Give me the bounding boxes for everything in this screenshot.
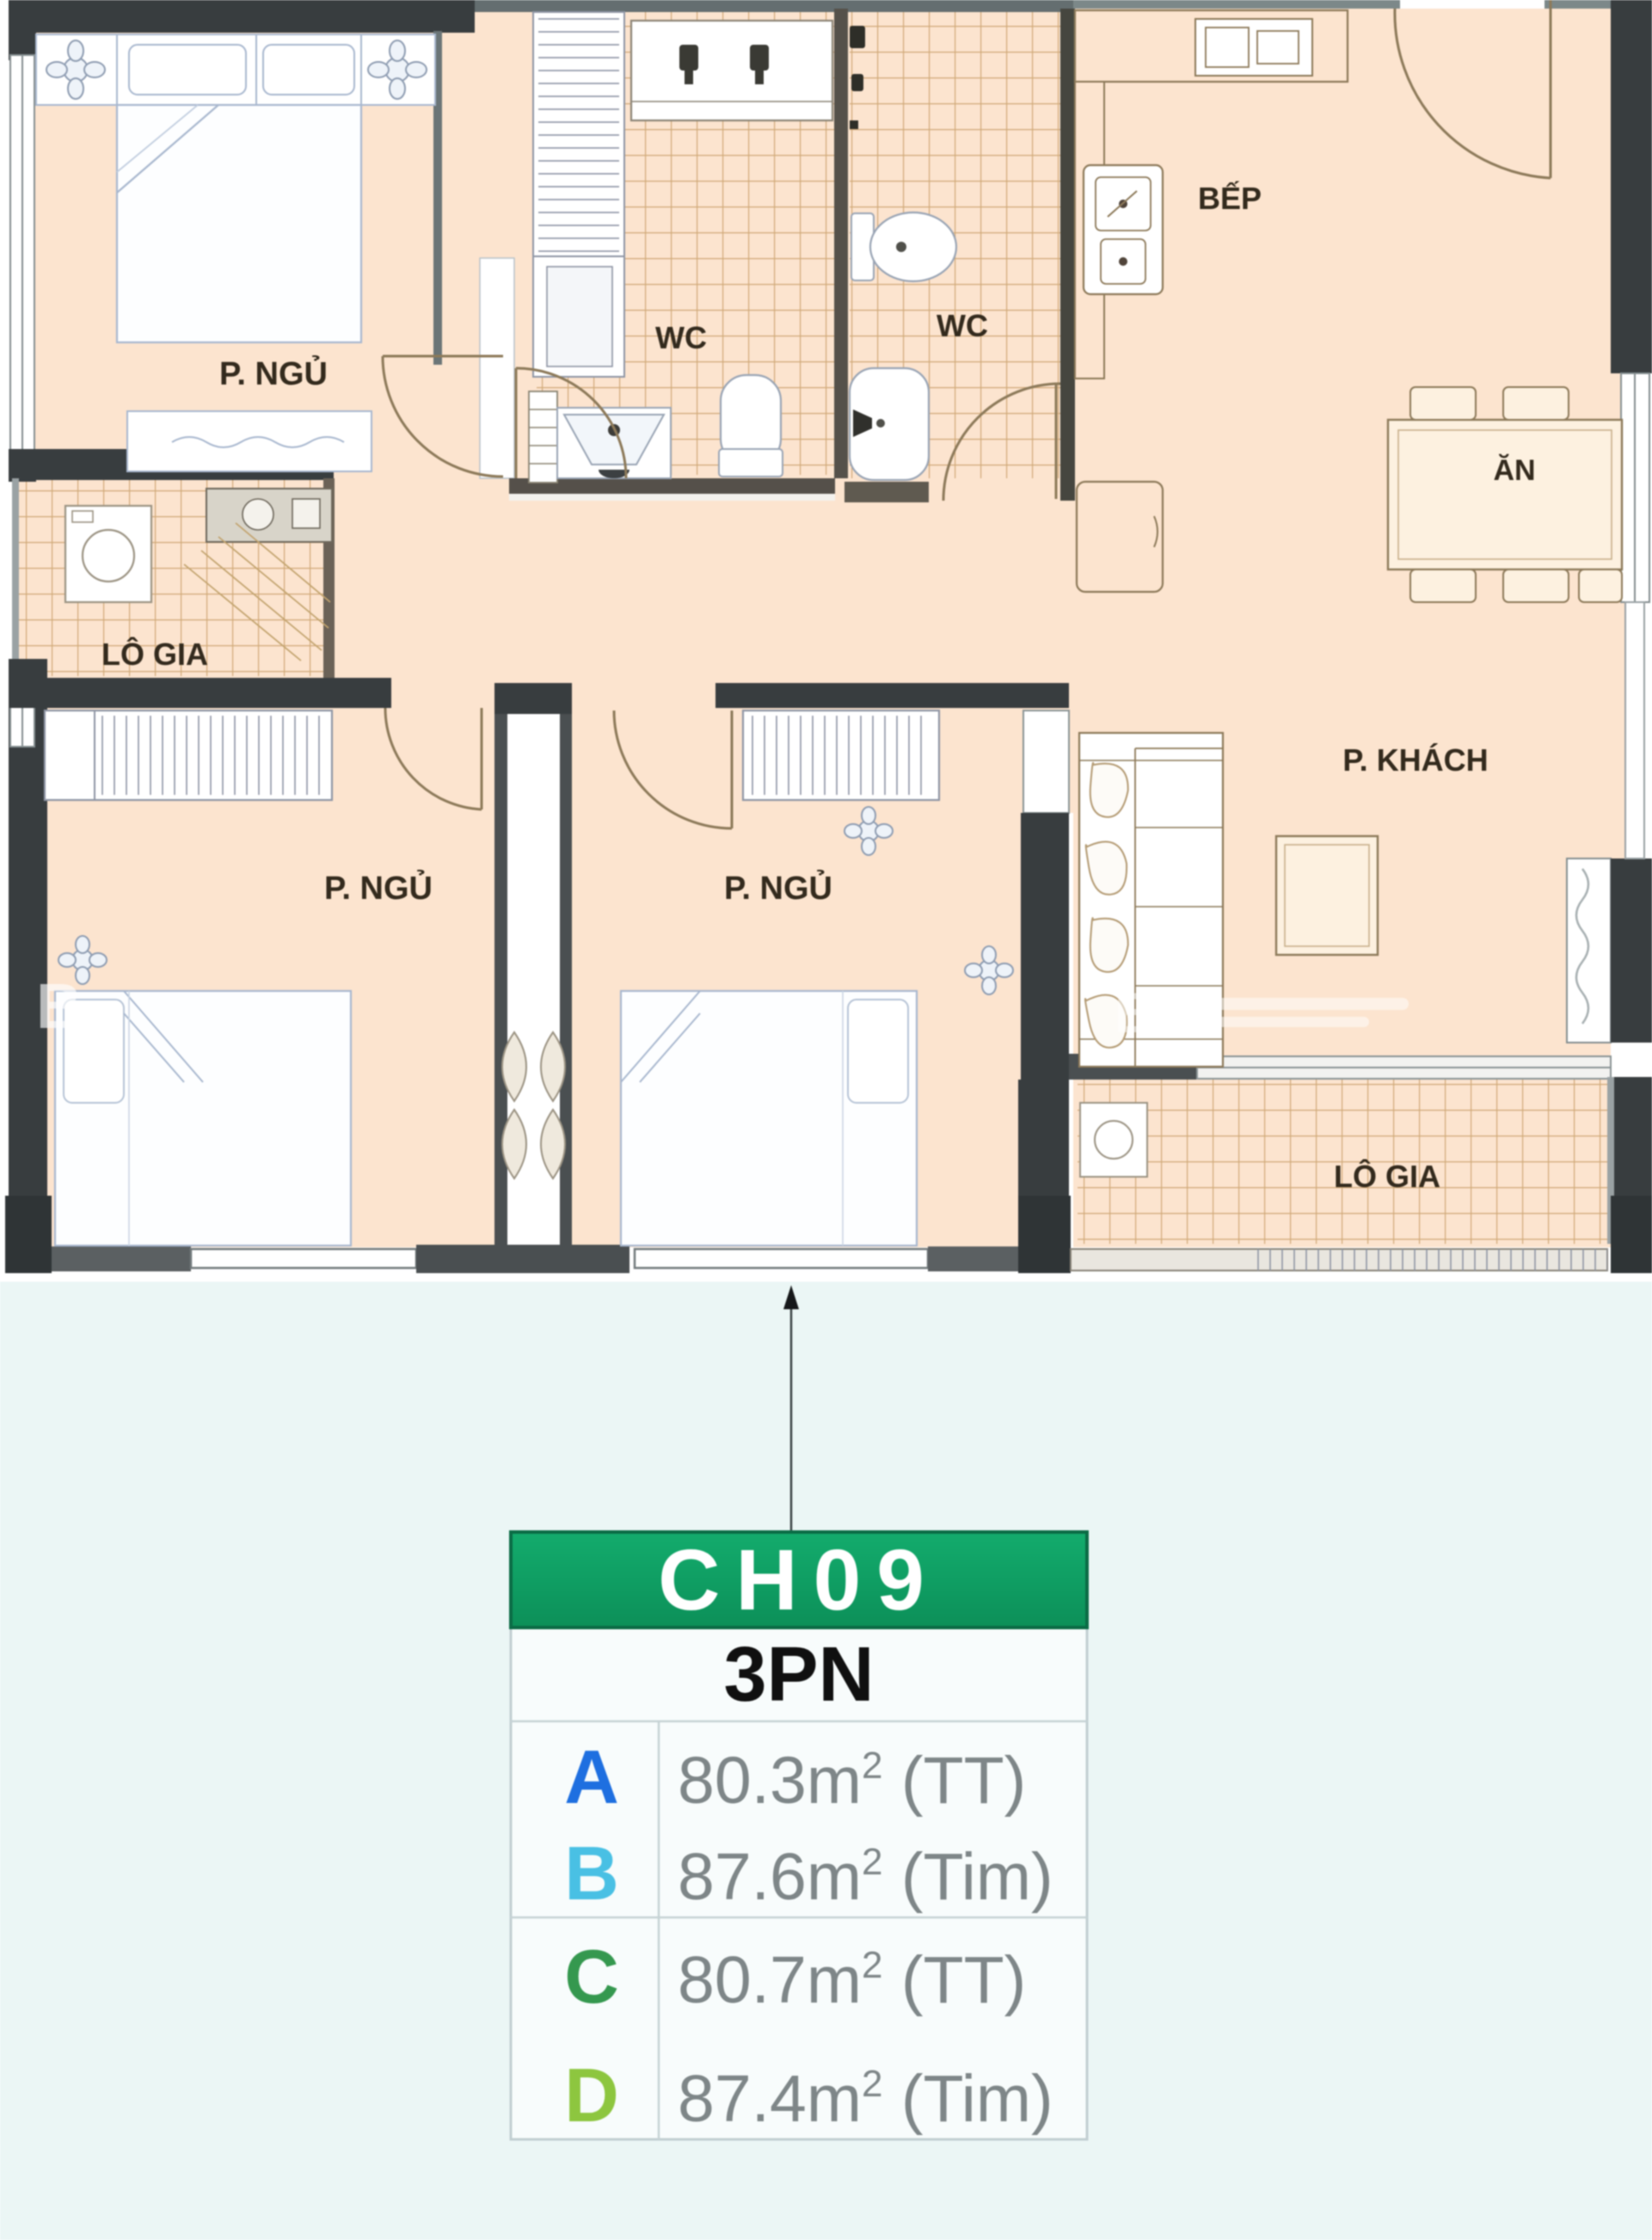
svg-text:B: B [1115, 981, 1156, 1044]
svg-text:WC: WC [655, 320, 707, 355]
svg-text:BẾP: BẾP [1198, 181, 1262, 216]
svg-text:80.7m2 (TT): 80.7m2 (TT) [678, 1943, 1026, 2017]
svg-text:P. NGỦ: P. NGỦ [324, 869, 433, 907]
svg-text:P. NGỦ: P. NGỦ [219, 354, 328, 392]
svg-text:CH09: CH09 [658, 1532, 940, 1628]
svg-text:ĂN: ĂN [1493, 454, 1535, 487]
svg-text:80.3m2 (TT): 80.3m2 (TT) [678, 1744, 1026, 1818]
svg-text:WC: WC [937, 308, 988, 343]
svg-text:3PN: 3PN [723, 1632, 874, 1718]
svg-text:LÔ GIA: LÔ GIA [1334, 1158, 1440, 1194]
svg-text:P. KHÁCH: P. KHÁCH [1342, 742, 1488, 778]
svg-text:C: C [564, 1934, 619, 2019]
svg-text:P. NGỦ: P. NGỦ [724, 869, 832, 907]
svg-text:D: D [564, 2052, 619, 2138]
svg-text:B: B [36, 970, 82, 1042]
svg-text:B: B [564, 1831, 619, 1916]
svg-text:LÔ GIA: LÔ GIA [101, 636, 208, 672]
svg-text:A: A [564, 1734, 619, 1819]
